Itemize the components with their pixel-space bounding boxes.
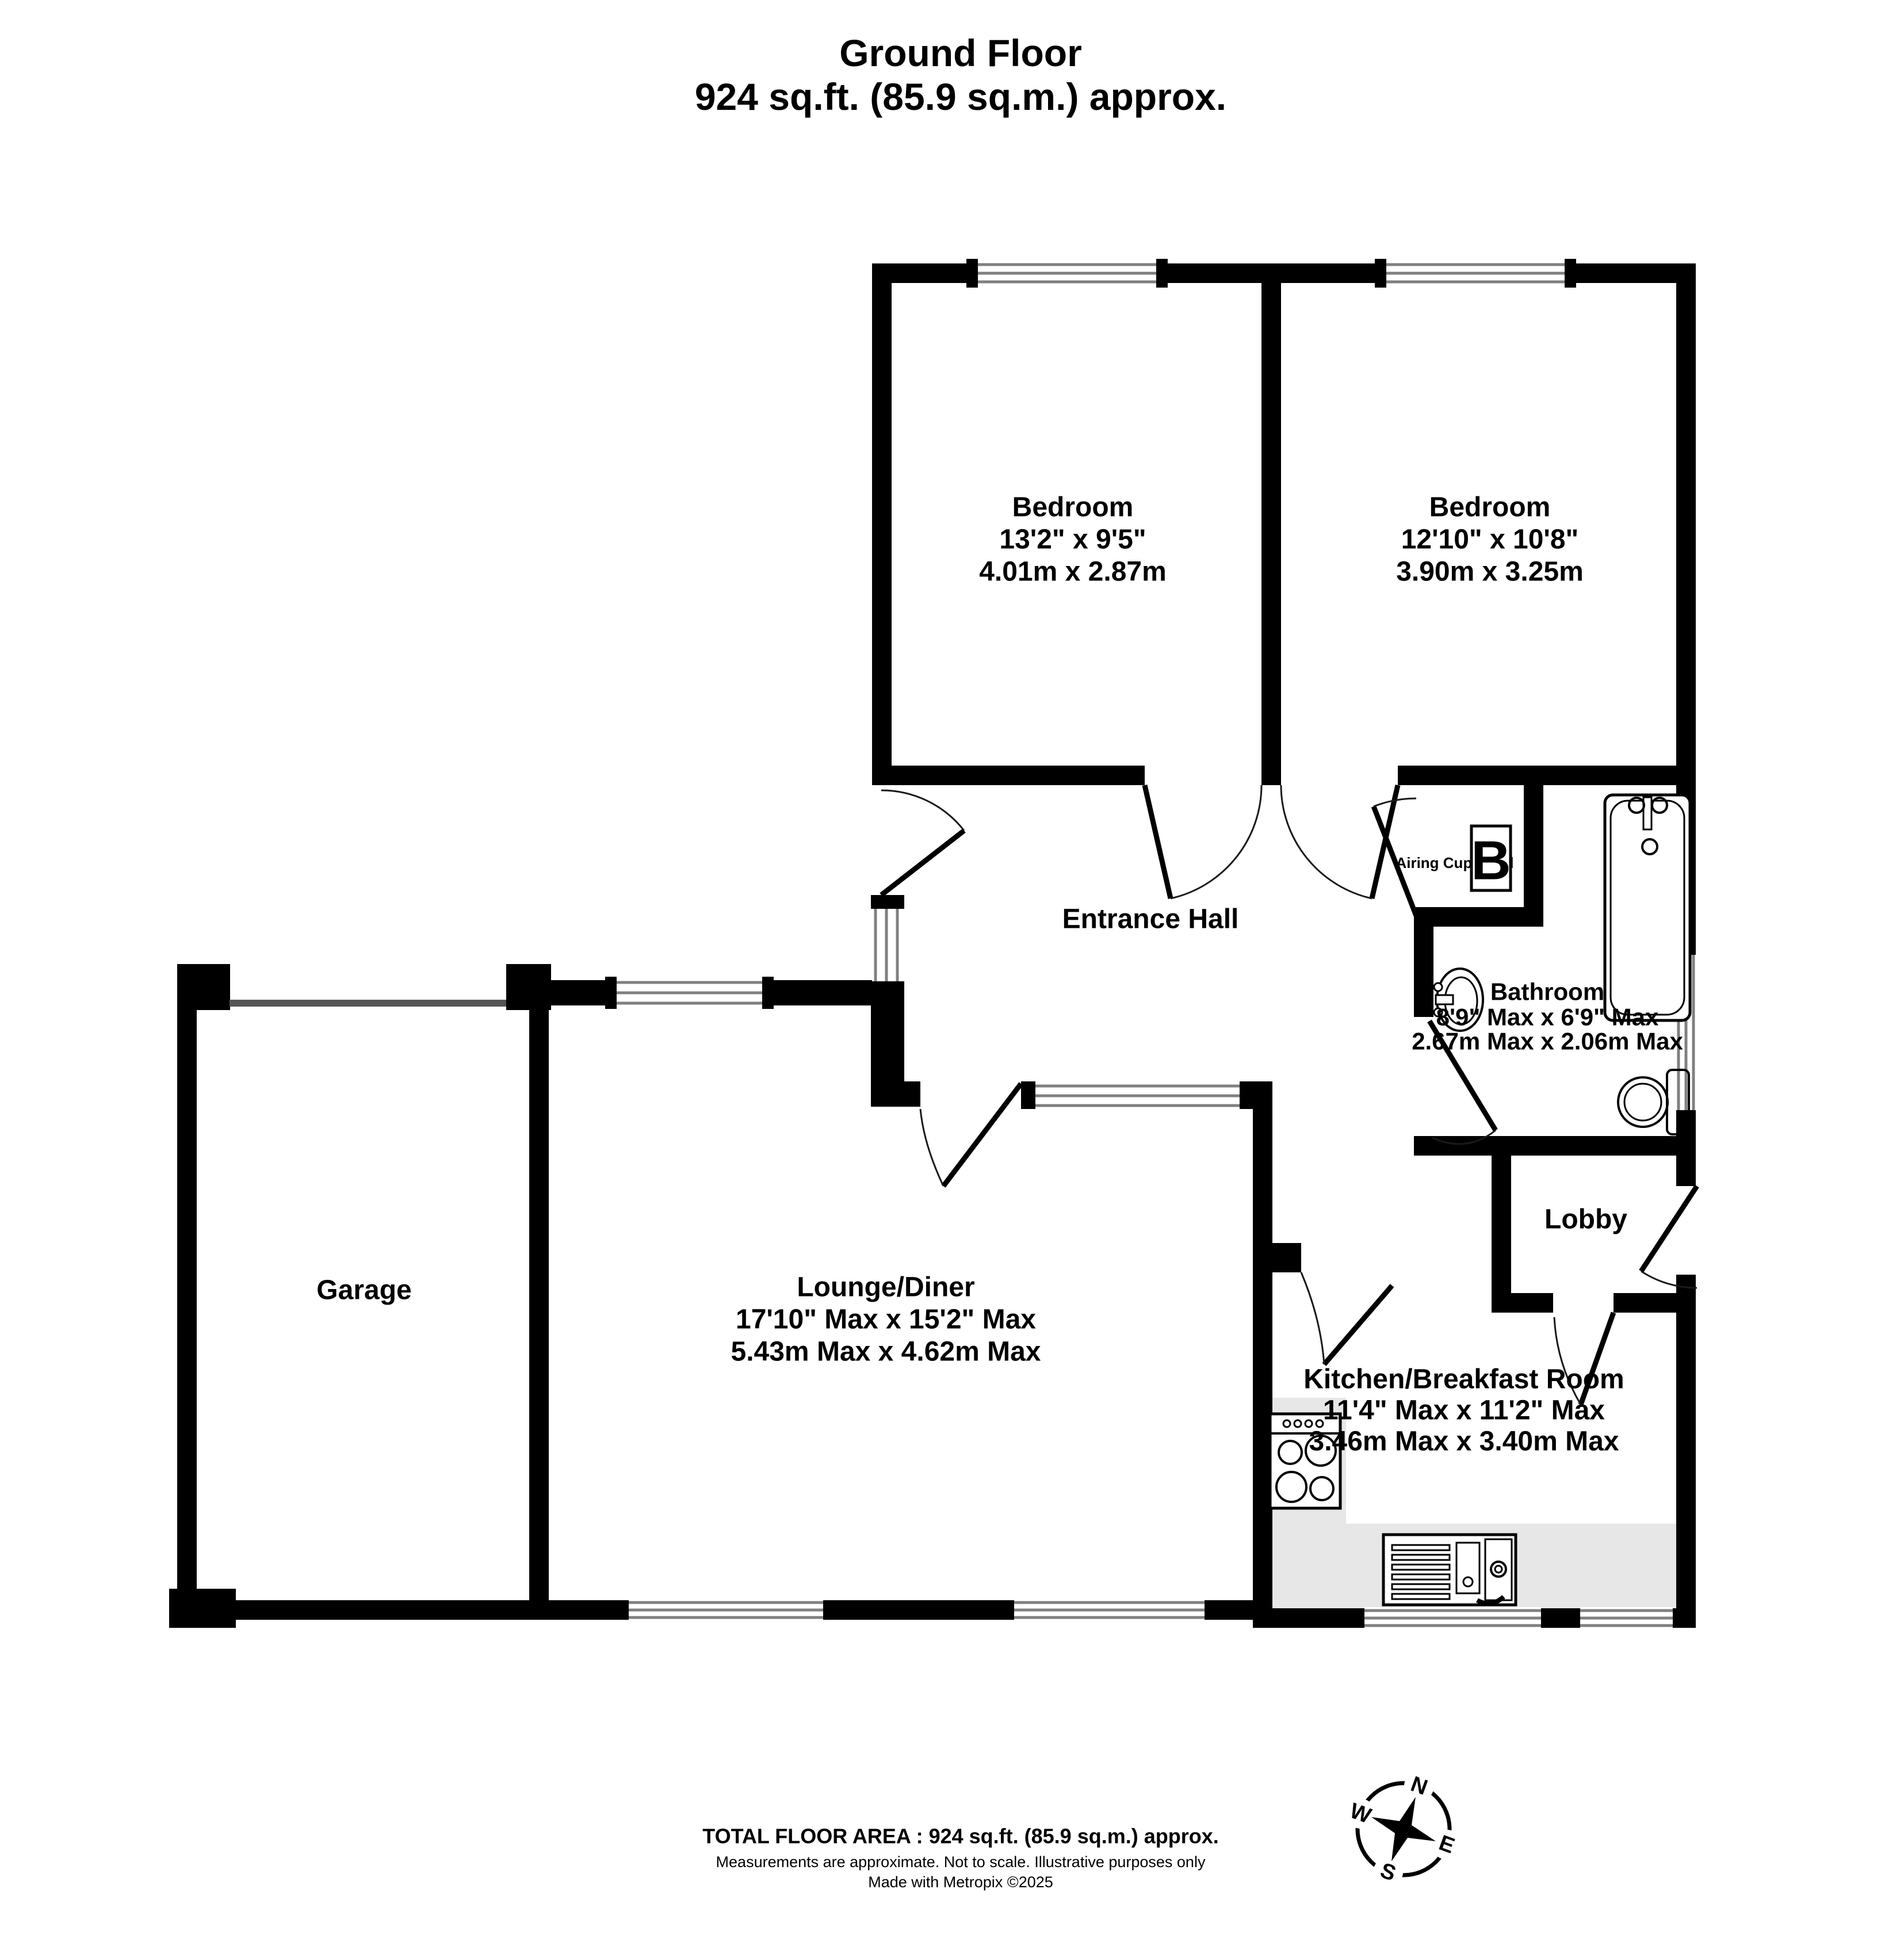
kitchen-name: Kitchen/Breakfast Room — [1303, 1364, 1624, 1395]
bathroom-metric: 2.67m Max x 2.06m Max — [1412, 1028, 1683, 1055]
lounge-label: Lounge/Diner 17'10" Max x 15'2" Max 5.43… — [731, 1272, 1041, 1367]
footer-disclaimer: Measurements are approximate. Not to sca… — [716, 1853, 1206, 1871]
title-line2: 924 sq.ft. (85.9 sq.m.) approx. — [695, 75, 1226, 118]
bedroom1-door — [1145, 785, 1261, 898]
entrance-hall-label: Entrance Hall — [1062, 904, 1239, 935]
bedroom1-imperial: 13'2" x 9'5" — [999, 525, 1146, 555]
footer: TOTAL FLOOR AREA : 924 sq.ft. (85.9 sq.m… — [702, 1825, 1218, 1891]
lobby-name: Lobby — [1544, 1204, 1627, 1235]
lounge-door — [920, 1084, 1021, 1186]
garage-name: Garage — [316, 1275, 411, 1306]
lobby-label: Lobby — [1544, 1204, 1627, 1235]
lobby-entrance-door — [1641, 1186, 1697, 1288]
compass-rose: N E S W — [1345, 1771, 1462, 1887]
bath-icon — [1605, 795, 1690, 1020]
garage-label: Garage — [316, 1275, 411, 1306]
kitchen-metric: 3.46m Max x 3.40m Max — [1309, 1427, 1619, 1457]
entrance-hall-name: Entrance Hall — [1062, 904, 1239, 935]
lounge-metric: 5.43m Max x 4.62m Max — [731, 1337, 1041, 1367]
bedroom2-label: Bedroom 12'10" x 10'8" 3.90m x 3.25m — [1396, 492, 1584, 587]
floorplan-page: Airing Cupboard B Ground Floor 924 sq.ft… — [0, 0, 1904, 1958]
kitchen-label: Kitchen/Breakfast Room 11'4" Max x 11'2"… — [1303, 1364, 1624, 1457]
sink-unit-icon — [1383, 1535, 1516, 1605]
kitchen-imperial: 11'4" Max x 11'2" Max — [1323, 1395, 1605, 1426]
title-line1: Ground Floor — [839, 32, 1082, 74]
bedroom1-metric: 4.01m x 2.87m — [979, 557, 1167, 587]
bathroom-name: Bathroom — [1490, 978, 1604, 1005]
bathroom-imperial: 8'9" Max x 6'9" Max — [1436, 1004, 1659, 1031]
footer-made-with: Made with Metropix ©2025 — [868, 1873, 1053, 1891]
kitchen-door — [1301, 1272, 1392, 1364]
bedroom2-metric: 3.90m x 3.25m — [1396, 557, 1584, 587]
lounge-name: Lounge/Diner — [797, 1272, 974, 1303]
compass-star — [1371, 1797, 1436, 1861]
title: Ground Floor 924 sq.ft. (85.9 sq.m.) app… — [695, 32, 1226, 118]
floorplan-svg: Airing Cupboard B Ground Floor 924 sq.ft… — [0, 0, 1904, 1958]
bedroom1-label: Bedroom 13'2" x 9'5" 4.01m x 2.87m — [979, 492, 1167, 587]
garage-door-icon — [230, 1000, 506, 1007]
bedroom2-imperial: 12'10" x 10'8" — [1401, 525, 1579, 555]
footer-total: TOTAL FLOOR AREA : 924 sq.ft. (85.9 sq.m… — [702, 1825, 1218, 1848]
bedroom2-door — [1281, 785, 1398, 898]
front-door — [881, 790, 964, 895]
lounge-imperial: 17'10" Max x 15'2" Max — [736, 1305, 1036, 1335]
boiler-letter: B — [1471, 830, 1511, 892]
airing-cupboard: Airing Cupboard B — [1395, 826, 1513, 892]
bedroom2-name: Bedroom — [1429, 492, 1551, 523]
bedroom1-name: Bedroom — [1012, 492, 1134, 523]
